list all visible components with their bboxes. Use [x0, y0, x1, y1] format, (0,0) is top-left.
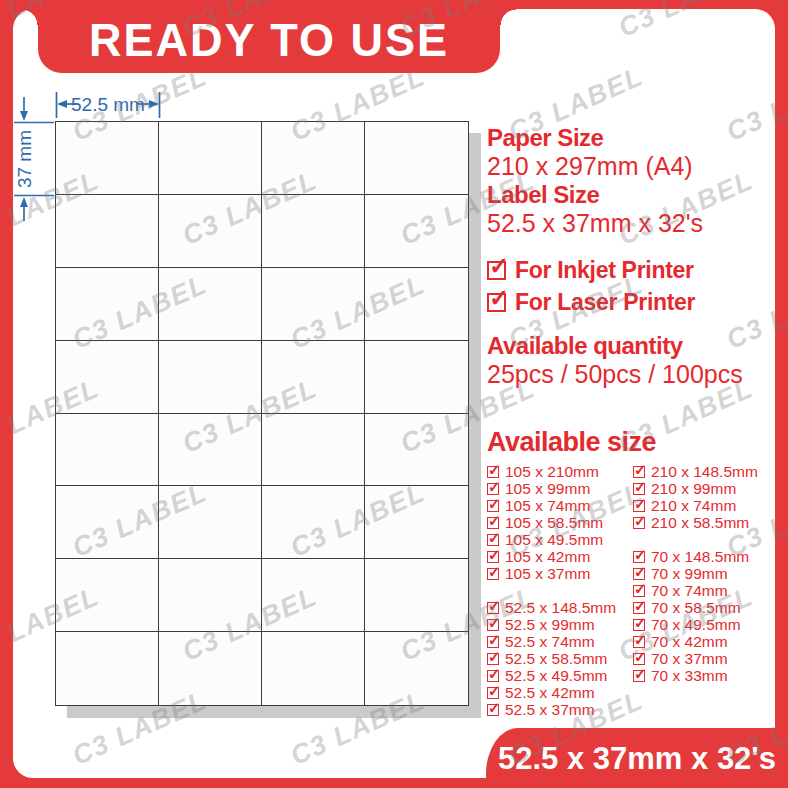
size-option: ✓ 210 x 148.5mm	[633, 463, 773, 481]
checkbox-checked-icon: ✓	[487, 466, 499, 478]
width-dimension-label: 52.5 mm	[71, 94, 145, 115]
checkbox-checked-icon: ✓	[633, 517, 645, 529]
check-mark-icon: ✓	[488, 615, 501, 630]
size-option: ✓ 70 x 33mm	[633, 667, 773, 685]
label-cell	[365, 341, 468, 414]
size-option: ✓ 70 x 37mm	[633, 650, 773, 668]
size-option-label: 52.5 x 99mm	[505, 616, 595, 634]
printer-compat-item: ✓ For Inkjet Printer	[487, 254, 775, 286]
size-option-label: 52.5 x 58.5mm	[505, 650, 608, 668]
label-cell	[56, 414, 159, 487]
label-cell	[365, 414, 468, 487]
size-option-label: 52.5 x 49.5mm	[505, 667, 608, 685]
label-cell	[56, 341, 159, 414]
label-size-heading: Label Size	[487, 181, 775, 208]
checkbox-checked-icon: ✓	[487, 619, 499, 631]
checkbox-checked-icon: ✓	[487, 653, 499, 665]
check-mark-icon: ✓	[634, 581, 647, 596]
size-option-label: 52.5 x 74mm	[505, 633, 595, 651]
size-option: ✓ 105 x 58.5mm	[487, 514, 633, 532]
printer-compat-label: For Inkjet Printer	[515, 257, 694, 284]
check-mark-icon: ✓	[488, 530, 501, 545]
checkbox-checked-icon: ✓	[487, 636, 499, 648]
size-option-label: 70 x 37mm	[651, 650, 728, 668]
size-option-label: 105 x 210mm	[505, 463, 599, 481]
size-option: ✓ 70 x 49.5mm	[633, 616, 773, 634]
banner-title: READY TO USE	[89, 6, 449, 67]
size-option: ✓ 105 x 74mm	[487, 497, 633, 515]
checkbox-checked-icon: ✓	[633, 500, 645, 512]
check-mark-icon: ✓	[488, 547, 501, 562]
checkbox-checked-icon: ✓	[487, 687, 499, 699]
check-mark-icon: ✓	[634, 615, 647, 630]
quantity-heading: Available quantity	[487, 332, 775, 359]
size-option-label: 105 x 49.5mm	[505, 531, 603, 549]
size-option: ✓ 70 x 99mm	[633, 565, 773, 583]
check-mark-icon: ✓	[488, 649, 501, 664]
size-option: ✓ 52.5 x 49.5mm	[487, 667, 633, 685]
dim-arrowhead-up	[20, 197, 28, 207]
checkbox-checked-icon: ✓	[487, 568, 499, 580]
size-option-label: 105 x 42mm	[505, 548, 590, 566]
size-option-label: 70 x 33mm	[651, 667, 728, 685]
label-cell	[262, 268, 365, 341]
paper-size-heading: Paper Size	[487, 124, 775, 151]
checkbox-checked-icon: ✓	[487, 704, 499, 716]
size-option: ✓ 52.5 x 74mm	[487, 633, 633, 651]
checkbox-checked-icon: ✓	[633, 568, 645, 580]
label-cell	[159, 414, 262, 487]
quantity-value: 25pcs / 50pcs / 100pcs	[487, 359, 775, 389]
footer-size-text: 52.5 x 37mm x 32's	[498, 739, 776, 777]
size-option-label: 70 x 42mm	[651, 633, 728, 651]
size-option: ✓ 52.5 x 99mm	[487, 616, 633, 634]
check-mark-icon: ✓	[634, 598, 647, 613]
checkbox-checked-icon: ✓	[633, 551, 645, 563]
size-option: ✓ 210 x 99mm	[633, 480, 773, 498]
checkbox-checked-icon: ✓	[633, 483, 645, 495]
paper-size-value: 210 x 297mm (A4)	[487, 151, 775, 181]
size-option-label: 105 x 99mm	[505, 480, 590, 498]
label-cell	[365, 486, 468, 559]
height-dimension-label: 37 mm	[14, 130, 35, 188]
check-mark-icon: ✓	[634, 462, 647, 477]
checkbox-checked-icon: ✓	[633, 602, 645, 614]
size-option-label: 105 x 74mm	[505, 497, 590, 515]
check-mark-icon: ✓	[634, 513, 647, 528]
label-cell	[262, 559, 365, 632]
size-option: ✓ 52.5 x 37mm	[487, 701, 633, 719]
size-option: ✓ 210 x 58.5mm	[633, 514, 773, 532]
label-cell	[56, 559, 159, 632]
check-mark-icon: ✓	[488, 683, 501, 698]
check-mark-icon: ✓	[634, 547, 647, 562]
size-option: ✓ 210 x 74mm	[633, 497, 773, 515]
check-mark-icon: ✓	[488, 462, 501, 477]
size-option-label: 105 x 37mm	[505, 565, 590, 583]
check-mark-icon: ✓	[488, 513, 501, 528]
label-cell	[262, 632, 365, 705]
label-cell	[262, 414, 365, 487]
label-cell	[159, 341, 262, 414]
available-size-heading: Available size	[487, 427, 775, 457]
check-mark-icon: ✓	[634, 666, 647, 681]
ready-to-use-banner: READY TO USE	[38, 0, 500, 73]
size-option: ✓ 52.5 x 42mm	[487, 684, 633, 702]
footer-size-banner: 52.5 x 37mm x 32's	[486, 728, 788, 788]
dim-arrowhead-down	[20, 111, 28, 121]
check-mark-icon: ✓	[634, 564, 647, 579]
check-mark-icon: ✓	[488, 598, 501, 613]
size-option: ✓ 105 x 49.5mm	[487, 531, 633, 549]
label-cell	[56, 486, 159, 559]
checkbox-checked-icon: ✓	[633, 619, 645, 631]
check-mark-icon: ✓	[488, 666, 501, 681]
size-option-label: 210 x 58.5mm	[651, 514, 749, 532]
size-option: ✓ 70 x 148.5mm	[633, 548, 773, 566]
size-option-label: 70 x 49.5mm	[651, 616, 741, 634]
spec-panel: Paper Size 210 x 297mm (A4) Label Size 5…	[487, 124, 775, 718]
label-cell	[159, 268, 262, 341]
check-mark-icon: ✓	[488, 700, 501, 715]
label-cell	[159, 486, 262, 559]
check-mark-icon: ✓	[488, 479, 501, 494]
checkbox-checked-icon: ✓	[487, 293, 506, 312]
check-mark-icon: ✓	[634, 649, 647, 664]
printer-compat-item: ✓ For Laser Printer	[487, 286, 775, 318]
size-option: ✓ 105 x 37mm	[487, 565, 633, 583]
label-cell	[262, 341, 365, 414]
printer-compat-label: For Laser Printer	[515, 289, 695, 316]
size-option-label: 70 x 148.5mm	[651, 548, 749, 566]
check-mark-icon: ✓	[488, 496, 501, 511]
label-cell	[365, 559, 468, 632]
checkbox-checked-icon: ✓	[633, 466, 645, 478]
check-mark-icon: ✓	[634, 632, 647, 647]
size-option-label: 70 x 58.5mm	[651, 599, 741, 617]
check-mark-icon: ✓	[634, 479, 647, 494]
check-mark-icon: ✓	[488, 632, 501, 647]
checkbox-checked-icon: ✓	[487, 517, 499, 529]
check-mark-icon: ✓	[488, 564, 501, 579]
dim-arrowhead-right	[149, 100, 159, 108]
label-cell	[365, 632, 468, 705]
size-option-label: 70 x 99mm	[651, 565, 728, 583]
label-cell	[159, 559, 262, 632]
size-option-label: 52.5 x 42mm	[505, 684, 595, 702]
size-option: ✓ 105 x 210mm	[487, 463, 633, 481]
size-option-label: 105 x 58.5mm	[505, 514, 603, 532]
label-cell	[56, 268, 159, 341]
dim-arrowhead-left	[57, 100, 67, 108]
checkbox-checked-icon: ✓	[633, 670, 645, 682]
label-cell	[365, 268, 468, 341]
size-option: ✓ 70 x 42mm	[633, 633, 773, 651]
checkbox-checked-icon: ✓	[633, 636, 645, 648]
checkbox-checked-icon: ✓	[487, 602, 499, 614]
size-option-label: 210 x 148.5mm	[651, 463, 758, 481]
size-option-label: 210 x 74mm	[651, 497, 736, 515]
size-option: ✓ 52.5 x 148.5mm	[487, 599, 633, 617]
checkbox-checked-icon: ✓	[487, 500, 499, 512]
size-option: ✓ 70 x 58.5mm	[633, 599, 773, 617]
size-option-label: 52.5 x 148.5mm	[505, 599, 616, 617]
checkbox-checked-icon: ✓	[633, 653, 645, 665]
size-option-label: 70 x 74mm	[651, 582, 728, 600]
checkbox-checked-icon: ✓	[487, 261, 506, 280]
checkbox-checked-icon: ✓	[633, 585, 645, 597]
checkbox-checked-icon: ✓	[487, 551, 499, 563]
label-cell	[159, 632, 262, 705]
size-option: ✓ 105 x 42mm	[487, 548, 633, 566]
label-cell	[56, 632, 159, 705]
size-option: ✓ 70 x 74mm	[633, 582, 773, 600]
printer-compat-list: ✓ For Inkjet Printer ✓ For Laser Printer	[487, 254, 775, 318]
check-mark-icon: ✓	[489, 286, 509, 310]
check-mark-icon: ✓	[489, 254, 509, 278]
size-option-label: 52.5 x 37mm	[505, 701, 595, 719]
size-list: ✓ 105 x 210mm ✓ 210 x 148.5mm ✓ 105 x 99…	[487, 463, 775, 718]
checkbox-checked-icon: ✓	[487, 483, 499, 495]
check-mark-icon: ✓	[634, 496, 647, 511]
size-option: ✓ 52.5 x 58.5mm	[487, 650, 633, 668]
label-cell	[262, 486, 365, 559]
checkbox-checked-icon: ✓	[487, 534, 499, 546]
checkbox-checked-icon: ✓	[487, 670, 499, 682]
size-option-label: 210 x 99mm	[651, 480, 736, 498]
label-size-value: 52.5 x 37mm x 32's	[487, 208, 775, 238]
size-option: ✓ 105 x 99mm	[487, 480, 633, 498]
